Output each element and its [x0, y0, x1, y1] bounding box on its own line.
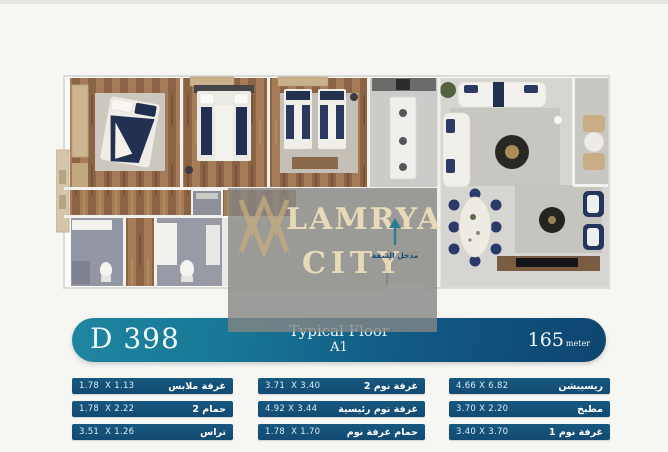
room-name: حمام غرفة نوم	[347, 427, 418, 438]
balcony	[575, 78, 608, 185]
room-dimensions: 4.66 X 6.82	[456, 381, 508, 391]
bed-icon	[194, 85, 254, 161]
area-unit: meter	[566, 339, 590, 348]
dims-column-1: 1.78 X 1.13 غرفة ملابس 1.78 X 2.22 حمام …	[72, 378, 233, 447]
dressing-room	[192, 190, 222, 216]
dimension-row: 4.92 X 3.44 غرفة نوم رئيسية	[258, 401, 425, 417]
room-name: مطبخ	[577, 404, 603, 415]
dimension-row: 1.78 X 1.13 غرفة ملابس	[72, 378, 233, 394]
vanity-icon	[72, 220, 112, 230]
washer-icon	[157, 223, 177, 265]
floor-type-code: A1	[72, 340, 606, 356]
balcony-chair-icon	[583, 115, 605, 132]
room-dimensions: 3.70 X 2.20	[456, 404, 508, 414]
dimension-row: 3.51 X 1.26 تراس	[72, 424, 233, 440]
area-value: 165	[528, 329, 564, 351]
terrace	[56, 150, 69, 232]
dims-column-3: 4.66 X 6.82 ريسيبشن 3.70 X 2.20 مطبخ 3.4…	[449, 378, 610, 447]
wardrobe-icon	[72, 85, 88, 157]
balcony-table-icon	[584, 132, 604, 152]
twin-bed-icon	[318, 89, 346, 149]
dimension-row: 3.71 X 3.40 غرفة نوم 2	[258, 378, 425, 394]
room-name: تراس	[200, 427, 226, 438]
room-dimensions: 3.71 X 3.40	[265, 381, 320, 391]
plant-icon	[440, 82, 456, 98]
room-name: غرفة نوم رئيسية	[338, 404, 418, 415]
balcony-chair-icon	[583, 153, 605, 170]
top-edge-strip	[0, 0, 668, 4]
room-dimensions: 1.78 X 1.70	[265, 427, 320, 437]
shower-icon	[72, 261, 90, 284]
room-name: غرفة نوم 2	[364, 381, 418, 392]
room-name: حمام 2	[192, 404, 226, 415]
twin-bed-icon	[284, 89, 312, 149]
toilet-icon	[100, 262, 112, 278]
dimension-row: 1.78 X 1.70 حمام غرفة نوم	[258, 424, 425, 440]
flyer-page: LAMRYA CITY مدخل الشقة D 398 Typical Flo…	[0, 0, 668, 452]
bedroom-bathroom	[156, 218, 222, 286]
bathroom-2	[71, 218, 124, 286]
area-block: 165meter	[528, 329, 590, 351]
toilet-icon	[180, 260, 194, 278]
corridor	[126, 218, 154, 286]
entrance-label: مدخل الشقة	[366, 251, 424, 260]
bench-icon	[292, 157, 338, 169]
floor-lamp-icon	[554, 116, 562, 124]
dimension-row: 3.40 X 3.70 غرفة نوم 1	[449, 424, 610, 440]
room-dimensions: 4.92 X 3.44	[265, 404, 317, 414]
watermark-box: LAMRYA CITY	[228, 188, 437, 332]
bedroom-3	[270, 77, 368, 188]
room-name: غرفة نوم 1	[549, 427, 603, 438]
room-dimensions: 1.78 X 2.22	[79, 404, 134, 414]
room-dimensions: 3.51 X 1.26	[79, 427, 134, 437]
kitchen	[370, 78, 438, 188]
room-dimensions: 1.78 X 1.13	[79, 381, 134, 391]
armchair-corner	[515, 185, 604, 253]
dimension-row: 1.78 X 2.22 حمام 2	[72, 401, 233, 417]
bedroom-master	[70, 78, 180, 188]
tv-icon	[516, 258, 578, 267]
up-arrow-icon	[388, 218, 402, 246]
room-name: ريسيبشن	[558, 381, 603, 392]
lamrya-logo-icon	[238, 196, 290, 256]
dimension-row: 3.70 X 2.20 مطبخ	[449, 401, 610, 417]
vanity-icon	[206, 225, 220, 265]
dimension-row: 4.66 X 6.82 ريسيبشن	[449, 378, 610, 394]
dims-column-2: 3.71 X 3.40 غرفة نوم 2 4.92 X 3.44 غرفة …	[258, 378, 425, 447]
room-name: غرفة ملابس	[168, 381, 226, 392]
entrance-annotation: مدخل الشقة	[366, 218, 424, 260]
stove-icon	[396, 79, 410, 90]
room-dimensions: 3.40 X 3.70	[456, 427, 508, 437]
dining-table-icon	[459, 197, 491, 257]
bedroom-2	[183, 77, 268, 188]
